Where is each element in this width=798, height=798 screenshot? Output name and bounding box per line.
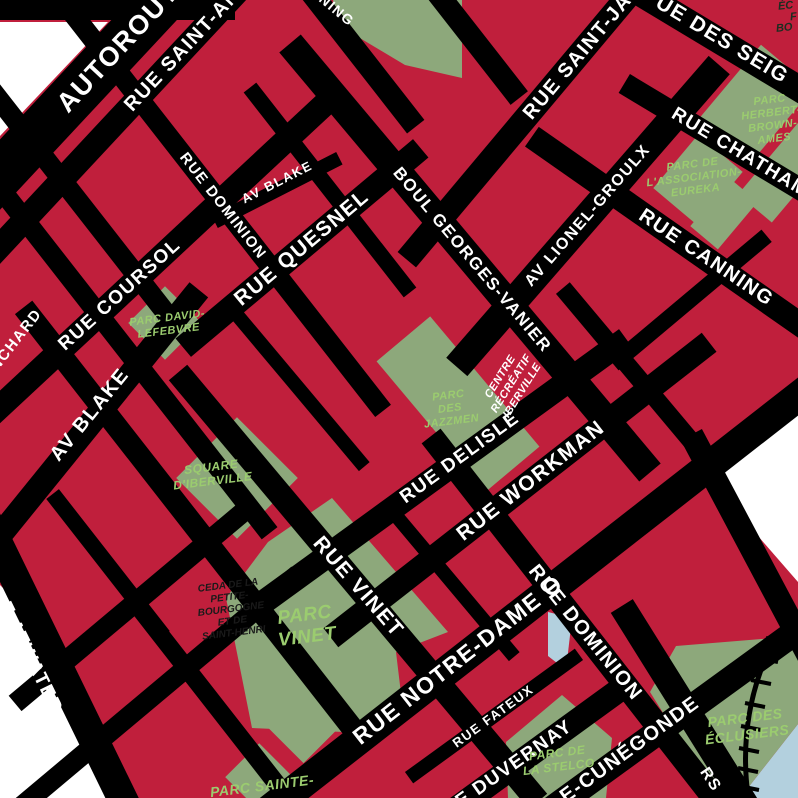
label-park-des-jazzmen: PARC DES JAZZMEN xyxy=(420,386,480,431)
neighbourhood-map: AUTOROUT RUE SAINT-AN NING RUE SAINT-JA … xyxy=(0,0,798,798)
label-parc-vinet: PARC VINET xyxy=(274,601,337,653)
label-ceda: CEDA DE LA PETITE- BOURGOGNE ET DE SAINT… xyxy=(194,576,267,644)
label-park-herbert-brown-ames: PARC HERBERT- BROWN- AMES xyxy=(739,91,798,150)
label-rue-saint-jacques: RUE SAINT-JA xyxy=(519,0,637,124)
label-corner-fragment-3: BO xyxy=(775,21,793,35)
